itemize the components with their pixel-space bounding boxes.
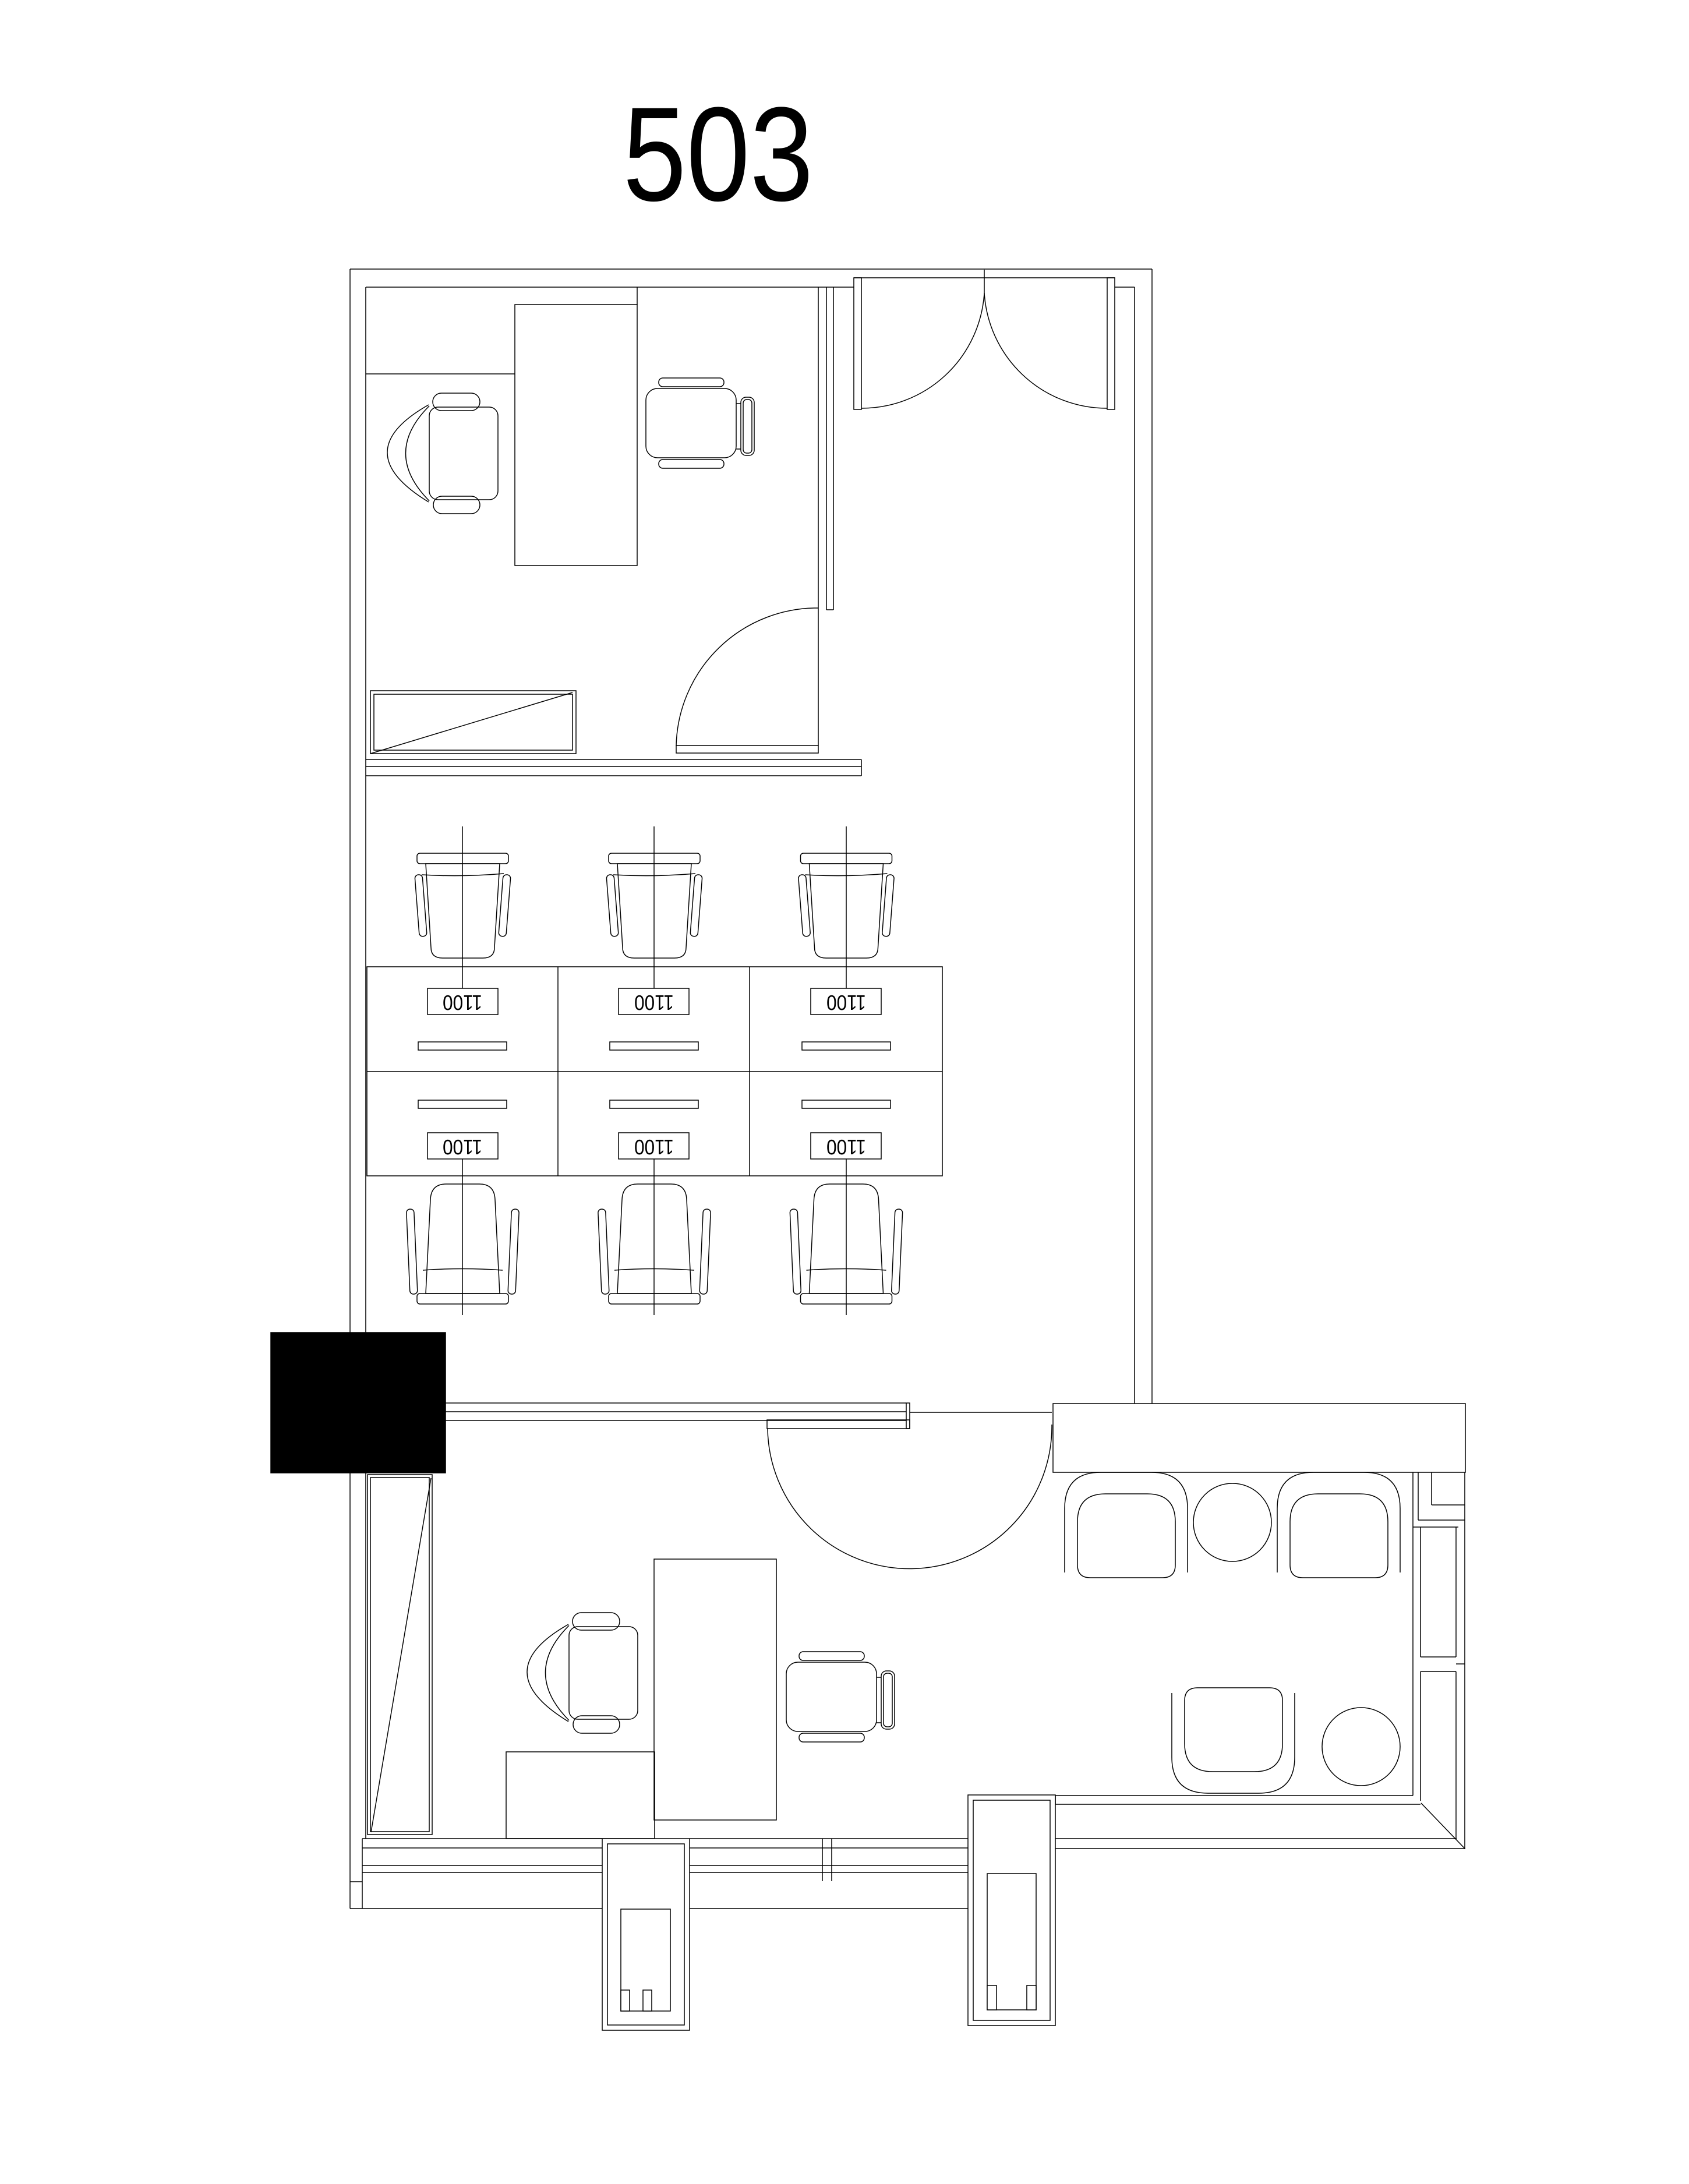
- svg-text:1100: 1100: [443, 1135, 482, 1159]
- svg-text:1100: 1100: [826, 1135, 866, 1159]
- svg-text:1100: 1100: [826, 991, 866, 1015]
- svg-text:1100: 1100: [634, 991, 674, 1015]
- svg-text:1100: 1100: [634, 1135, 674, 1159]
- svg-text:1100: 1100: [443, 991, 482, 1015]
- svg-text:503: 503: [623, 79, 814, 229]
